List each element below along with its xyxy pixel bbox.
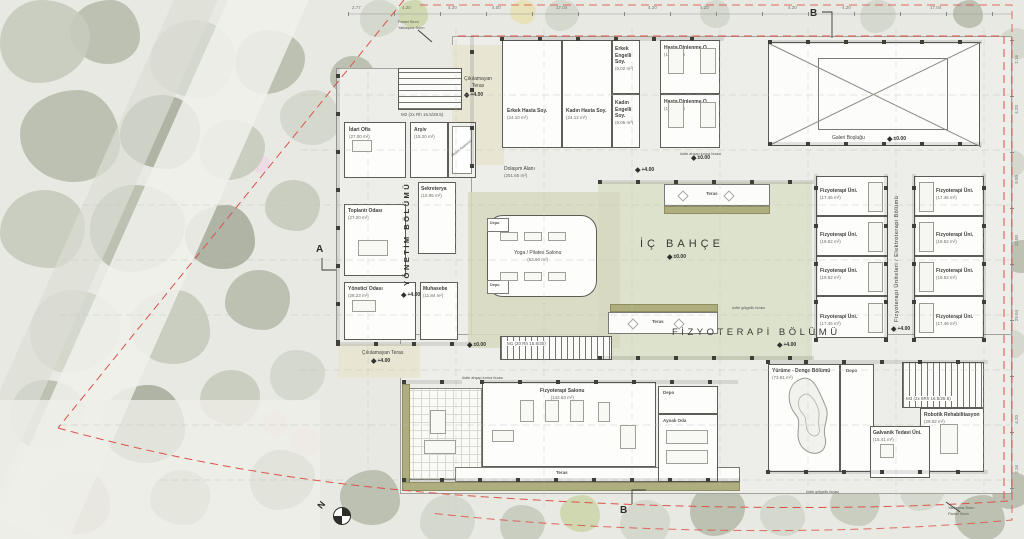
- room-yurume-denge: [768, 364, 840, 472]
- furniture-outline: [500, 272, 518, 281]
- furniture-outline: [430, 410, 446, 434]
- level-mark: +4.00: [892, 326, 910, 332]
- column-row: [336, 342, 472, 346]
- column-row: [766, 360, 988, 364]
- room-depo: [840, 364, 874, 472]
- floor-plan-canvas: M2 (2x Rh 16.5/28.5) İdari Ofis (27.00 m…: [0, 0, 1024, 539]
- furniture-outline: [668, 48, 684, 74]
- column-row: [768, 40, 982, 44]
- room-fizyo-unit: [914, 256, 984, 296]
- boundary-labels-bottom: Yaklaşma Sınırı Parsel Sınırı: [948, 506, 975, 517]
- tree-blob: [953, 0, 983, 28]
- tree-blob: [760, 495, 805, 536]
- column-row: [766, 470, 988, 474]
- furniture-outline: [570, 400, 584, 422]
- room-kadin-engelli-soy: [612, 94, 640, 148]
- annotation: üstte gölgelik hizası: [806, 490, 839, 494]
- stair-m2: [398, 68, 462, 110]
- stair-m3-label: M3 (2x 8Rh 16.5/28.5): [905, 396, 952, 401]
- tree-blob: [500, 505, 545, 539]
- gallery-inner: [818, 58, 948, 130]
- tree-blob: [510, 0, 536, 24]
- tree-blob: [360, 0, 400, 37]
- tree-blob: [420, 495, 475, 539]
- tree-blob: [620, 500, 670, 539]
- furniture-outline: [524, 232, 542, 241]
- annotation: üstte gölgelik hizası: [732, 306, 765, 310]
- furniture-outline: [424, 440, 456, 454]
- furniture-outline: [666, 430, 708, 444]
- furniture-outline: [352, 140, 372, 152]
- boundary-labels-top: Parsel Sınırı Yaklaşma Sınırı: [398, 20, 425, 31]
- stair-m2-label: M2 (2x Rh 16.5/28.5): [401, 112, 443, 117]
- room-fizyo-unit: [914, 176, 984, 216]
- furniture-outline: [352, 300, 376, 312]
- room-arsiv: [410, 122, 448, 178]
- ground-patch: [0, 400, 320, 539]
- room-fizyo-unit: [914, 216, 984, 256]
- section-mark-a: A: [316, 244, 323, 255]
- furniture-outline: [548, 232, 566, 241]
- room-erkek-hasta-soy: [502, 40, 562, 148]
- north-compass-icon: [333, 507, 351, 525]
- furniture-outline: [598, 402, 610, 422]
- tree-blob: [560, 495, 600, 532]
- courtyard-title: İÇ BAHÇE: [640, 238, 724, 250]
- tree-blob: [270, 350, 325, 401]
- column-row: [912, 174, 916, 342]
- furniture-outline: [940, 424, 958, 454]
- furniture-outline: [492, 430, 514, 442]
- level-mark: ±0.00: [668, 254, 686, 260]
- stair-m3: [902, 362, 984, 408]
- column-row: [982, 174, 986, 342]
- room-muhasebe: [420, 282, 458, 340]
- planter: [402, 482, 740, 491]
- room-fizyo-unit: [816, 176, 888, 216]
- annotation: üstte ahşap kırma hizası: [680, 152, 721, 156]
- furniture-outline: [548, 272, 566, 281]
- level-mark: +4.00: [636, 167, 654, 173]
- furniture-outline: [524, 272, 542, 281]
- column-row: [768, 142, 982, 146]
- level-mark: +4.00: [465, 92, 483, 98]
- tree-blob: [265, 180, 320, 231]
- column-row: [814, 174, 818, 342]
- column-row: [402, 478, 740, 482]
- planter: [610, 304, 718, 312]
- furniture-outline: [700, 102, 716, 128]
- column-row: [470, 36, 474, 168]
- furniture-outline: [668, 102, 684, 128]
- balance-path: [769, 365, 839, 471]
- room-erkek-engelli-soy: [612, 40, 640, 94]
- column-row: [500, 37, 724, 41]
- stair-m1-label: M1 (20 Rh 15.8/30): [506, 341, 547, 346]
- furniture-outline: [620, 425, 636, 449]
- column-row: [402, 380, 462, 384]
- column-row: [884, 174, 888, 342]
- tree-blob: [225, 270, 290, 330]
- room-fizyo-unit: [816, 256, 888, 296]
- section-mark-b-top: B: [810, 8, 817, 19]
- room-aynali-oda: [658, 414, 718, 482]
- furniture-outline: [700, 48, 716, 74]
- planter: [402, 384, 410, 490]
- furniture-outline: [666, 450, 708, 464]
- tree-blob: [860, 0, 896, 33]
- room-sekreterya: [418, 182, 456, 254]
- level-mark: +4.00: [778, 342, 796, 348]
- room-fizyo-unit: [816, 216, 888, 256]
- column-row: [480, 380, 738, 384]
- column-row: [598, 180, 814, 184]
- section-mark-b-bottom: B: [620, 505, 627, 516]
- furniture-outline: [520, 400, 534, 422]
- tree-blob: [0, 0, 90, 83]
- stair-m1: [500, 336, 612, 360]
- tree-blob: [280, 90, 340, 145]
- column-row: [336, 68, 340, 344]
- planter: [664, 206, 770, 214]
- furniture-outline: [545, 400, 559, 422]
- furniture-outline: [500, 232, 518, 241]
- furniture-outline: [358, 240, 388, 256]
- level-mark: +4.00: [372, 358, 390, 364]
- section-title-elektroterapi: Fizyoterapi Üniteleri / Elektroterapi Bö…: [894, 182, 900, 322]
- room-fizyo-unit: [914, 296, 984, 338]
- section-title-yonetim: YÖNETİM BÖLÜMÜ: [402, 186, 411, 286]
- furniture-outline: [880, 444, 894, 458]
- level-mark: +4.00: [402, 292, 420, 298]
- room-kadin-hasta-soy: [562, 40, 612, 148]
